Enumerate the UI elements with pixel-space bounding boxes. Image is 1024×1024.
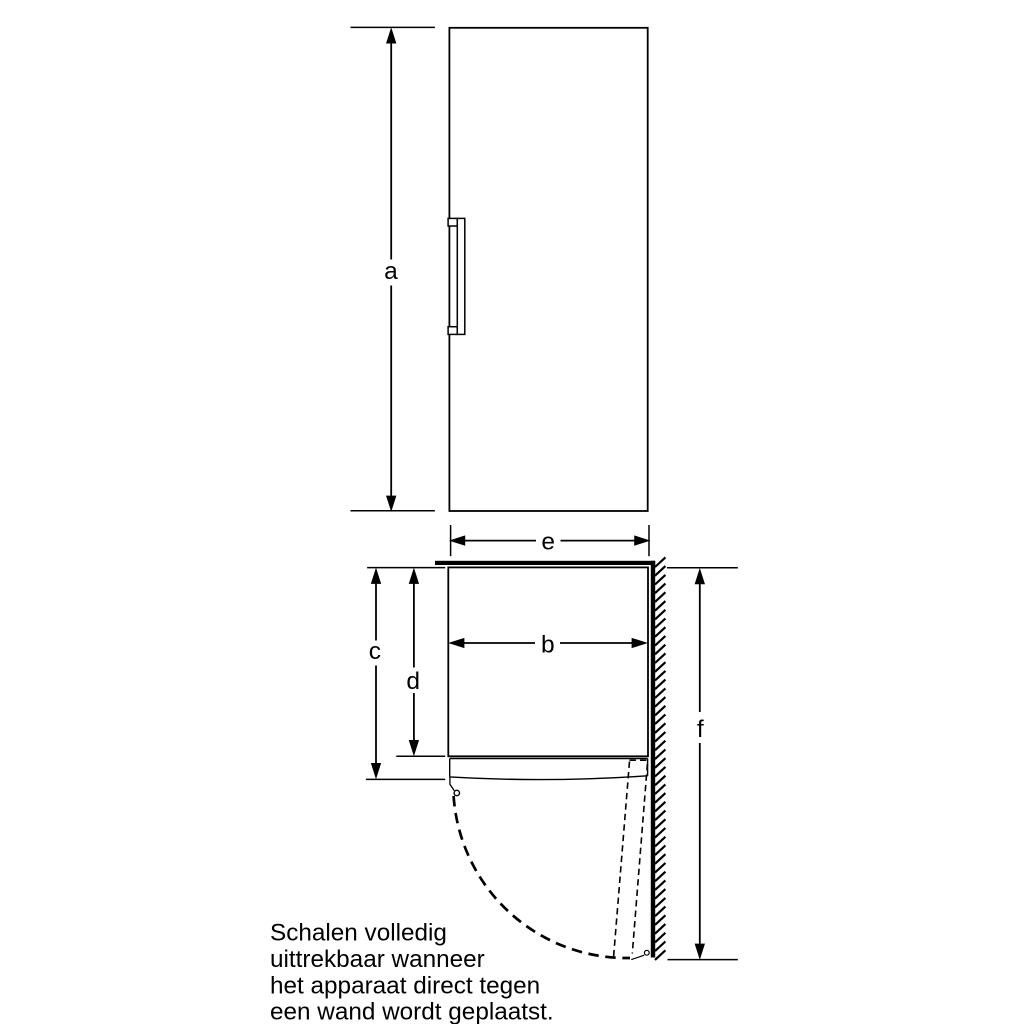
svg-text:het apparaat direct tegen: het apparaat direct tegen [270,972,540,999]
svg-text:b: b [541,631,555,658]
svg-text:uittrekbaar wanneer: uittrekbaar wanneer [270,946,485,973]
svg-text:Schalen volledig: Schalen volledig [270,920,447,947]
svg-text:f: f [697,716,704,743]
svg-text:c: c [369,638,381,665]
svg-text:d: d [406,668,420,695]
svg-text:een wand wordt geplaatst.: een wand wordt geplaatst. [270,999,554,1024]
svg-text:e: e [541,529,555,556]
svg-text:a: a [384,258,398,285]
